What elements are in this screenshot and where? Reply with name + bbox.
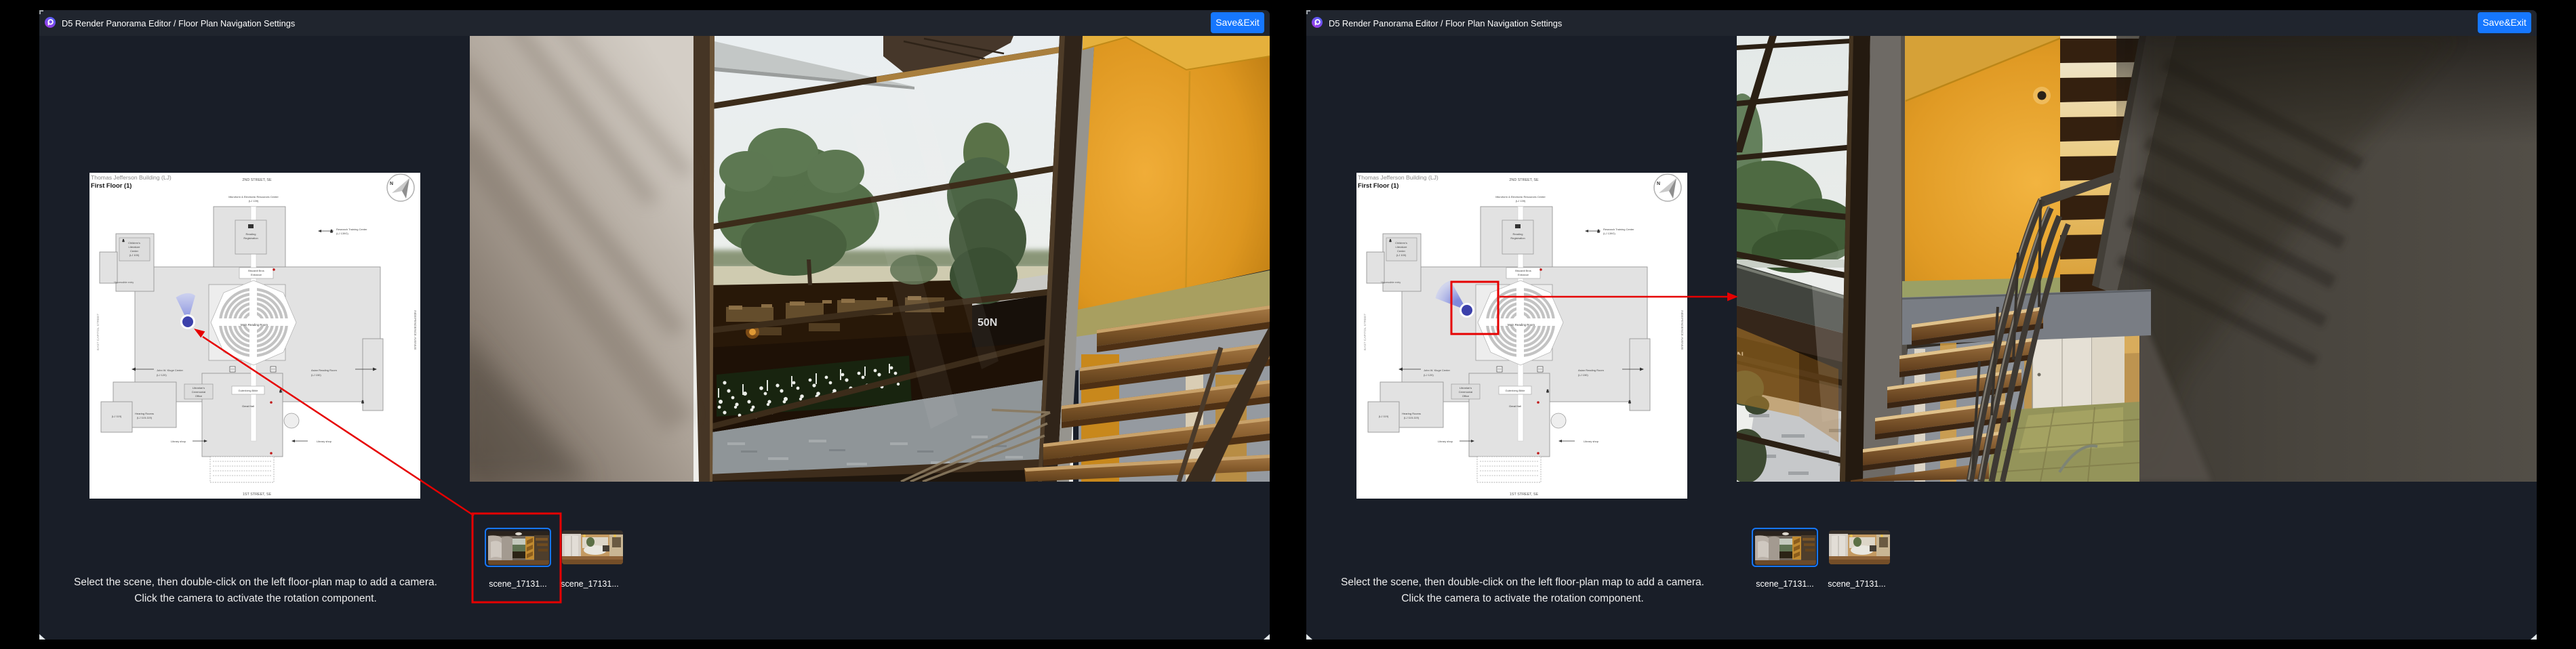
svg-text:Registration: Registration: [243, 236, 258, 240]
svg-text:Entrance: Entrance: [251, 273, 262, 276]
svg-text:1ST STREET, SE: 1ST STREET, SE: [243, 493, 272, 497]
svg-text:(LJ 120): (LJ 120): [157, 373, 167, 377]
svg-text:Gutenberg Bible: Gutenberg Bible: [239, 389, 259, 392]
svg-text:Biscardi Bros: Biscardi Bros: [248, 269, 264, 272]
svg-text:Reading: Reading: [246, 232, 256, 236]
svg-text:Asian Reading Room: Asian Reading Room: [311, 369, 337, 372]
svg-text:(LJ 139): (LJ 139): [249, 199, 259, 203]
svg-text:N: N: [390, 182, 393, 186]
svg-text:Microform & Electronic Resourc: Microform & Electronic Resources Center: [228, 195, 279, 198]
svg-text:(LJ 139G): (LJ 139G): [336, 232, 348, 235]
svg-text:(LJ 119): (LJ 119): [112, 415, 122, 418]
svg-text:*Accessible entry: *Accessible entry: [114, 281, 134, 284]
svg-text:Literature: Literature: [129, 245, 141, 249]
svg-text:Main Reading Room: Main Reading Room: [241, 323, 268, 327]
svg-text:(LJ 115-119): (LJ 115-119): [137, 416, 153, 419]
svg-text:First Floor (1): First Floor (1): [91, 182, 132, 189]
svg-text:Great Hall: Great Hall: [242, 404, 254, 408]
svg-text:INDEPENDENCE AVENUE: INDEPENDENCE AVENUE: [413, 310, 417, 350]
svg-text:(LJ 150): (LJ 150): [311, 373, 321, 377]
svg-text:Research Training Center: Research Training Center: [336, 228, 367, 231]
svg-text:Office: Office: [195, 394, 203, 398]
svg-text:Ceremonial: Ceremonial: [192, 390, 206, 394]
svg-text:Hearing Rooms: Hearing Rooms: [135, 412, 154, 415]
svg-text:Library shop: Library shop: [317, 440, 332, 443]
svg-text:(LJ 100): (LJ 100): [129, 253, 140, 257]
svg-text:Center: Center: [130, 249, 139, 253]
svg-text:EAST CAPITOL STREET: EAST CAPITOL STREET: [96, 314, 100, 350]
svg-text:2ND STREET, SE: 2ND STREET, SE: [242, 178, 272, 182]
svg-text:Thomas Jefferson Building (LJ): Thomas Jefferson Building (LJ): [91, 174, 172, 181]
svg-text:Children's: Children's: [128, 241, 140, 245]
svg-text:Librarian's: Librarian's: [193, 386, 205, 390]
svg-text:Library shop: Library shop: [171, 440, 186, 443]
svg-text:John W. Kluge Center: John W. Kluge Center: [157, 369, 184, 372]
